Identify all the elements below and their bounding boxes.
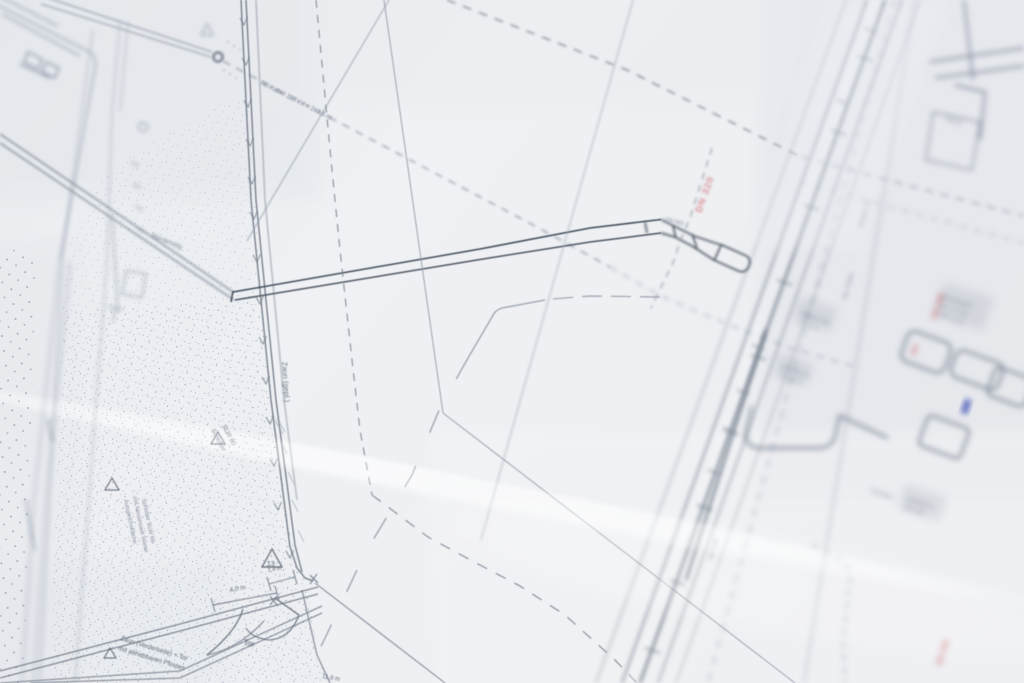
svg-text:13: 13 bbox=[267, 561, 275, 568]
